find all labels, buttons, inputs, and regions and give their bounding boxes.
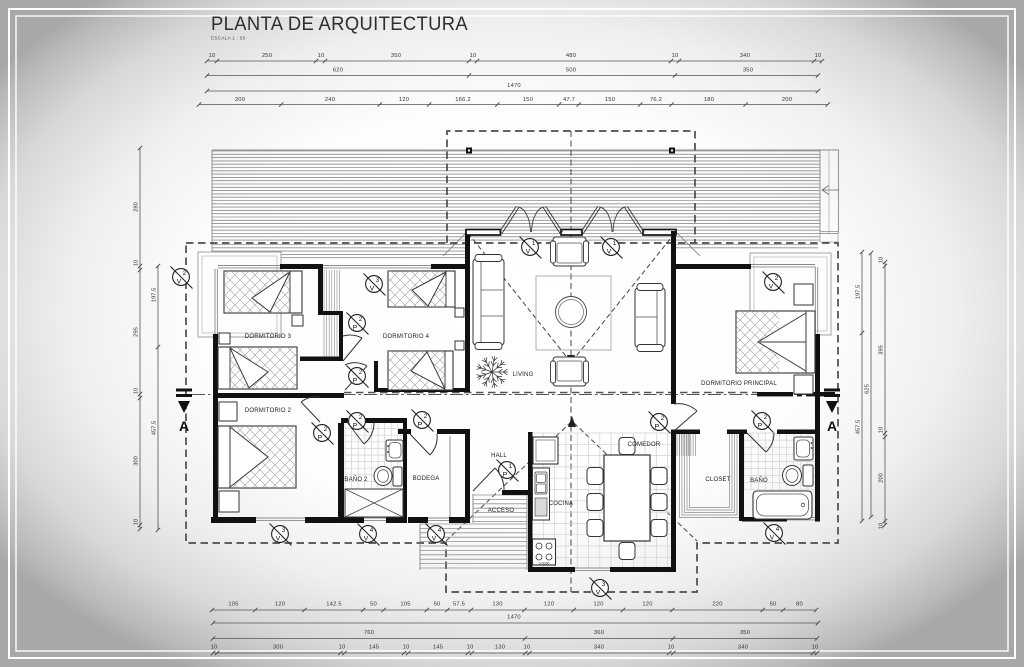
svg-text:625: 625: [865, 384, 871, 394]
svg-text:0 0000: 0 0000: [539, 562, 550, 566]
svg-text:300: 300: [134, 456, 140, 466]
svg-text:350: 350: [391, 53, 401, 59]
svg-text:57.5: 57.5: [453, 602, 465, 608]
svg-text:200: 200: [879, 473, 885, 483]
svg-text:LIVING: LIVING: [513, 372, 534, 378]
svg-text:166.2: 166.2: [455, 97, 471, 103]
svg-text:395: 395: [879, 345, 885, 355]
svg-text:COMEDOR: COMEDOR: [628, 442, 661, 448]
svg-text:200: 200: [235, 97, 245, 103]
svg-text:V: V: [370, 285, 375, 292]
svg-text:10: 10: [470, 53, 477, 59]
svg-text:130: 130: [495, 645, 505, 651]
svg-text:2: 2: [661, 415, 665, 422]
svg-text:10: 10: [467, 645, 474, 651]
svg-text:P: P: [353, 422, 358, 429]
svg-text:10: 10: [812, 645, 819, 651]
svg-text:V: V: [364, 535, 369, 542]
svg-text:CLOSET: CLOSET: [705, 477, 730, 483]
svg-text:150: 150: [605, 97, 615, 103]
svg-text:500: 500: [566, 68, 576, 74]
svg-text:BAÑO 2: BAÑO 2: [344, 476, 368, 483]
svg-text:200: 200: [782, 97, 792, 103]
svg-text:120: 120: [593, 602, 603, 608]
svg-text:BAÑO: BAÑO: [750, 477, 768, 484]
svg-text:2: 2: [183, 270, 187, 277]
svg-text:50: 50: [770, 602, 777, 608]
svg-text:P: P: [318, 434, 323, 441]
svg-text:120: 120: [399, 97, 409, 103]
svg-text:120: 120: [642, 602, 652, 608]
svg-text:10: 10: [815, 53, 822, 59]
svg-text:360: 360: [594, 630, 604, 636]
svg-text:47.7: 47.7: [563, 97, 575, 103]
svg-text:197.5: 197.5: [152, 288, 158, 303]
svg-text:145: 145: [369, 645, 379, 651]
svg-text:DORMITORIO 2: DORMITORIO 2: [245, 408, 292, 414]
svg-text:P: P: [353, 324, 358, 331]
svg-text:10: 10: [403, 645, 410, 651]
svg-text:760: 760: [364, 630, 374, 636]
svg-text:10: 10: [134, 388, 140, 394]
svg-text:10: 10: [339, 645, 346, 651]
svg-text:10: 10: [211, 645, 218, 651]
svg-text:250: 250: [262, 53, 272, 59]
svg-text:4: 4: [370, 527, 374, 534]
svg-text:2: 2: [424, 413, 428, 420]
svg-text:DORMITORIO PRINCIPAL: DORMITORIO PRINCIPAL: [701, 381, 777, 387]
svg-text:HALL: HALL: [491, 453, 507, 459]
svg-text:2: 2: [324, 426, 328, 433]
svg-text:A: A: [179, 418, 189, 434]
svg-text:3: 3: [602, 581, 606, 588]
svg-text:240: 240: [325, 97, 335, 103]
svg-text:V: V: [770, 534, 775, 541]
svg-text:50: 50: [370, 602, 377, 608]
svg-text:1470: 1470: [507, 615, 521, 621]
svg-text:130: 130: [492, 602, 502, 608]
svg-text:350: 350: [740, 630, 750, 636]
svg-text:80: 80: [796, 602, 803, 608]
svg-text:PLANTA DE ARQUITECTURA: PLANTA DE ARQUITECTURA: [211, 13, 468, 35]
svg-text:COCINA: COCINA: [549, 501, 574, 507]
svg-text:280: 280: [134, 202, 140, 212]
svg-text:V: V: [769, 283, 774, 290]
svg-text:76.2: 76.2: [650, 97, 662, 103]
svg-text:V: V: [432, 535, 437, 542]
svg-text:4: 4: [438, 527, 442, 534]
svg-text:P: P: [655, 423, 660, 430]
svg-text:2: 2: [359, 414, 363, 421]
svg-text:V: V: [276, 535, 281, 542]
svg-text:480: 480: [566, 53, 576, 59]
svg-text:10: 10: [879, 523, 885, 529]
svg-text:105: 105: [400, 602, 410, 608]
svg-text:10: 10: [318, 53, 325, 59]
svg-text:120: 120: [544, 602, 554, 608]
svg-text:V: V: [526, 248, 531, 255]
svg-text:3: 3: [282, 527, 286, 534]
svg-text:197.5: 197.5: [856, 285, 862, 300]
svg-text:340: 340: [740, 53, 750, 59]
svg-text:BODEGA: BODEGA: [413, 476, 440, 482]
svg-text:300: 300: [273, 645, 283, 651]
svg-text:1: 1: [532, 240, 536, 247]
svg-text:4: 4: [776, 526, 780, 533]
svg-text:ESCALA 1 : 50: ESCALA 1 : 50: [211, 36, 246, 41]
svg-text:340: 340: [738, 645, 748, 651]
svg-text:295: 295: [134, 327, 140, 337]
svg-text:340: 340: [594, 645, 604, 651]
svg-text:10: 10: [134, 260, 140, 266]
svg-text:10: 10: [879, 257, 885, 263]
svg-text:105: 105: [228, 602, 238, 608]
svg-text:2: 2: [775, 275, 779, 282]
svg-text:P: P: [503, 471, 508, 478]
svg-text:1: 1: [509, 463, 513, 470]
svg-text:V: V: [177, 278, 182, 285]
svg-text:10: 10: [672, 53, 679, 59]
svg-text:180: 180: [704, 97, 714, 103]
svg-text:DORMITORIO 4: DORMITORIO 4: [383, 334, 430, 340]
svg-text:620: 620: [333, 68, 343, 74]
svg-text:350: 350: [743, 68, 753, 74]
svg-text:V: V: [596, 589, 601, 596]
svg-text:P: P: [353, 377, 358, 384]
svg-text:150: 150: [523, 97, 533, 103]
svg-text:1470: 1470: [507, 83, 521, 89]
svg-text:10: 10: [879, 427, 885, 433]
svg-text:ACCESO: ACCESO: [488, 508, 515, 514]
svg-text:A: A: [827, 418, 837, 434]
svg-text:120: 120: [275, 602, 285, 608]
svg-text:10: 10: [134, 519, 140, 525]
svg-text:220: 220: [712, 602, 722, 608]
svg-text:10: 10: [209, 53, 216, 59]
svg-text:1: 1: [613, 240, 617, 247]
svg-text:142.5: 142.5: [326, 602, 342, 608]
svg-text:2: 2: [359, 316, 363, 323]
svg-text:P: P: [758, 422, 763, 429]
svg-text:2: 2: [359, 369, 363, 376]
svg-text:DORMITORIO 3: DORMITORIO 3: [245, 334, 292, 340]
svg-text:50: 50: [434, 602, 441, 608]
svg-text:V: V: [607, 248, 612, 255]
svg-text:457.5: 457.5: [856, 420, 862, 435]
svg-text:10: 10: [524, 645, 531, 651]
svg-text:P: P: [418, 421, 423, 428]
svg-text:2: 2: [764, 414, 768, 421]
svg-text:3: 3: [376, 277, 380, 284]
svg-text:457.5: 457.5: [152, 421, 158, 436]
svg-text:10: 10: [668, 645, 675, 651]
svg-text:145: 145: [433, 645, 443, 651]
